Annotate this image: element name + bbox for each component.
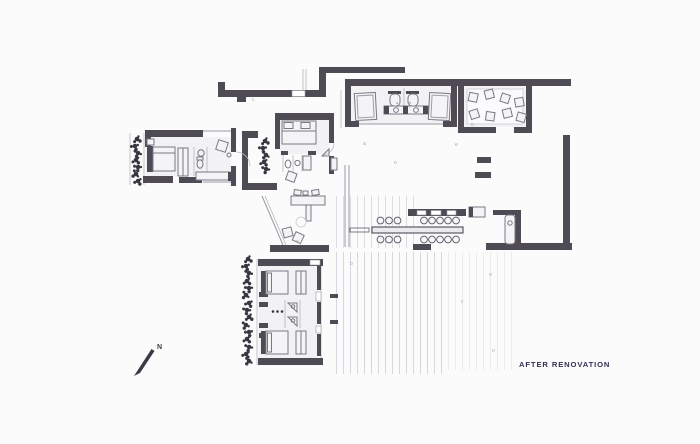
- chair: [468, 92, 478, 102]
- door-step: [330, 294, 338, 298]
- wall-segment: [329, 113, 334, 143]
- sideboard: [475, 172, 491, 178]
- wall-segment: [317, 266, 321, 290]
- dining-chair: [437, 217, 444, 224]
- wall-segment: [242, 183, 277, 190]
- plan-canvas: a b: [0, 0, 700, 444]
- wall-segment: [270, 245, 329, 252]
- bed: [153, 147, 175, 171]
- chair: [286, 171, 298, 183]
- desk-item: [294, 190, 302, 196]
- plant-clump: [244, 255, 253, 263]
- wall-segment: [526, 86, 532, 127]
- notation: o: [489, 272, 492, 278]
- bathtub: [354, 92, 376, 120]
- wall-segment: [345, 79, 571, 86]
- cooktop: [417, 211, 426, 216]
- wall-segment: [317, 302, 321, 324]
- plant-clump: [133, 135, 142, 143]
- window: [316, 292, 321, 301]
- dining-chair: [445, 236, 452, 243]
- desk-item: [303, 191, 308, 195]
- vanity-cabinet: [403, 106, 408, 114]
- plant-clump: [244, 342, 254, 353]
- north-needle-icon: [134, 349, 155, 376]
- wall-segment: [443, 121, 457, 127]
- basin-dot: [276, 310, 279, 313]
- dining-chair: [377, 217, 384, 224]
- deck-lower-faint: [446, 252, 512, 370]
- wall-segment: [259, 302, 268, 307]
- chair: [484, 89, 494, 99]
- notation: o: [471, 122, 474, 128]
- plant-clump: [242, 321, 251, 330]
- toilet-icon: [285, 160, 291, 168]
- vanity-cabinet: [384, 106, 389, 114]
- plant-clump: [261, 137, 270, 145]
- basin-dot: [281, 310, 284, 313]
- wall-segment: [493, 210, 520, 215]
- dining-chair: [429, 217, 436, 224]
- floor-plan-drawing: a b: [0, 0, 700, 444]
- wall-segment: [345, 121, 359, 127]
- notation: b: [350, 261, 353, 267]
- dining-table: [372, 227, 463, 233]
- chair: [469, 109, 480, 120]
- dining-chair: [394, 236, 401, 243]
- wall-segment: [258, 358, 323, 365]
- toilet-icon: [390, 94, 400, 106]
- sideboard: [477, 157, 491, 163]
- nightstand: [147, 139, 154, 145]
- chair: [516, 112, 527, 123]
- notation: o: [492, 348, 495, 354]
- wall-segment: [242, 131, 248, 188]
- sink-unit: [431, 211, 441, 216]
- wall-segment: [231, 128, 236, 152]
- angled-partition: [265, 196, 286, 245]
- dining-chair: [386, 217, 393, 224]
- dining-chair: [421, 217, 428, 224]
- hall-cabinet: [331, 158, 337, 170]
- plant-clump: [262, 151, 271, 160]
- wall-segment: [308, 151, 316, 155]
- bench-cap: [228, 172, 233, 181]
- dining-chair: [445, 217, 452, 224]
- notation: e: [296, 239, 299, 245]
- chair: [282, 227, 293, 238]
- desk-leg: [306, 205, 311, 221]
- dining-chair: [453, 217, 460, 224]
- dining-chair: [377, 236, 384, 243]
- chair: [502, 108, 512, 118]
- wall-segment: [259, 323, 268, 328]
- stool: [296, 217, 306, 227]
- desk-item: [312, 189, 320, 195]
- pillow: [284, 123, 293, 129]
- notation: o: [394, 160, 397, 166]
- wall-segment: [345, 86, 351, 127]
- bathtub: [428, 92, 450, 120]
- dining-chair: [453, 236, 460, 243]
- window: [310, 260, 320, 265]
- deck-upper: [336, 196, 414, 248]
- shower: [303, 156, 311, 170]
- plant-clump: [244, 268, 254, 278]
- wall-segment: [458, 127, 496, 133]
- wall-segment: [514, 127, 532, 133]
- plan-caption: AFTER RENOVATION: [519, 360, 610, 369]
- wall-segment: [242, 131, 258, 138]
- wall-segment: [145, 130, 203, 137]
- north-arrow: N: [134, 344, 162, 376]
- chair: [500, 93, 511, 104]
- vanity-cabinet: [423, 106, 428, 114]
- dining-chair: [429, 236, 436, 243]
- north-label: N: [157, 344, 162, 351]
- wall-segment: [275, 113, 333, 120]
- sink-icon: [295, 160, 300, 165]
- wall-segment: [458, 86, 464, 133]
- wall-segment: [281, 151, 288, 155]
- bed: [266, 331, 288, 354]
- desk: [291, 196, 325, 205]
- wall-segment: [563, 135, 570, 250]
- pillow: [301, 123, 310, 129]
- appliance: [447, 211, 456, 216]
- bed: [266, 271, 288, 294]
- door-step: [330, 320, 338, 324]
- notation: e: [455, 142, 458, 148]
- chair: [514, 97, 524, 107]
- angled-partition: [262, 196, 283, 245]
- wall-segment: [451, 86, 457, 127]
- plant-clump: [244, 298, 255, 309]
- bed-headboard: [261, 331, 266, 354]
- dining-chair: [437, 236, 444, 243]
- plant-clump: [133, 176, 144, 187]
- notation: a: [363, 141, 366, 147]
- bed-headboard: [147, 146, 153, 172]
- wall-segment: [515, 210, 521, 249]
- bed-headboard: [261, 271, 266, 294]
- wall-segment: [413, 244, 431, 250]
- chair: [485, 111, 495, 121]
- window: [316, 326, 321, 333]
- tall-cabinet: [505, 215, 515, 244]
- wall-segment: [486, 243, 572, 250]
- wall-segment: [317, 334, 321, 356]
- dining-chair: [394, 217, 401, 224]
- notation: c: [252, 97, 255, 103]
- dining-chair: [386, 236, 393, 243]
- window: [292, 91, 305, 97]
- wall-segment: [143, 176, 173, 183]
- basin-dot: [272, 310, 275, 313]
- deck-lower: [330, 252, 446, 374]
- island-edge: [469, 207, 473, 217]
- wall-segment: [319, 67, 405, 73]
- entry-column: [237, 95, 246, 102]
- study-furniture: [282, 171, 325, 244]
- dining-chair: [421, 236, 428, 243]
- bench: [196, 172, 230, 180]
